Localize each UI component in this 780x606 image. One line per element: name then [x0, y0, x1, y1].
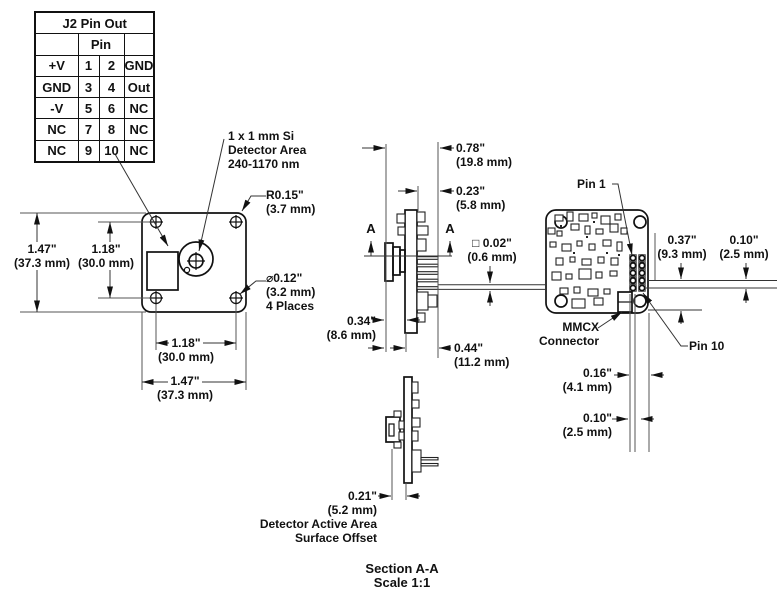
dim-surface-offset: 0.21" (5.2 mm) Detector Active Area Surf…	[260, 489, 377, 545]
smd-components	[548, 212, 627, 308]
dim-pin-col-offset: 0.16" (4.1 mm)	[563, 366, 612, 394]
pin-header	[630, 255, 646, 292]
mmcx-connector-label: MMCX Connector	[539, 320, 599, 348]
dim-front-height: 1.47" (37.3 mm)	[12, 242, 72, 270]
section-marker-a-right: A	[445, 222, 454, 236]
section-view	[378, 377, 438, 500]
dim-can-depth: 0.34" (8.6 mm)	[327, 314, 376, 342]
detector-area-note: 1 x 1 mm Si Detector Area 240-1170 nm	[228, 129, 306, 171]
mmcx-leader-line	[598, 312, 622, 328]
dim-pin-col-pitch: 0.10" (2.5 mm)	[563, 411, 612, 439]
dim-pin-square: □ 0.02" (0.6 mm)	[467, 236, 516, 264]
pin1-label: Pin 1	[577, 177, 606, 191]
table-row: NC7 8NC	[35, 119, 154, 140]
pcb-edge	[405, 210, 417, 333]
pin10-label: Pin 10	[689, 339, 724, 353]
dim-pin-protrusion: 0.23" (5.8 mm)	[456, 184, 505, 212]
pinout-table: J2 Pin Out Pin +V1 2GND GND3 4Out -V5 6N…	[34, 11, 155, 163]
section-caption: Section A-A Scale 1:1	[365, 562, 438, 590]
engineering-drawing-page: J2 Pin Out Pin +V1 2GND GND3 4Out -V5 6N…	[0, 0, 780, 606]
dim-board-to-pin: 0.44" (11.2 mm)	[454, 341, 509, 369]
dim-corner-radius: R0.15" (3.7 mm)	[266, 188, 315, 216]
dim-hole-spacing-vertical: 1.18" (30.0 mm)	[76, 242, 136, 270]
detector-can-side	[385, 243, 405, 281]
table-row: NC9 10NC	[35, 140, 154, 162]
pin-header-cell: Pin	[78, 34, 124, 55]
detector-leader-line	[199, 139, 224, 251]
dim-hole-spacing-horizontal: 1.18" (30.0 mm)	[156, 336, 216, 364]
pinout-table-title: J2 Pin Out	[35, 12, 154, 34]
radius-leader-line	[242, 196, 266, 211]
dim-hole-diameter: ⌀0.12" (3.2 mm) 4 Places	[266, 271, 315, 313]
table-row: +V1 2GND	[35, 55, 154, 76]
side-view	[362, 142, 545, 358]
hole-dia-leader-line	[240, 281, 266, 294]
detector-can-section	[386, 411, 404, 448]
dim-pin-row-pitch: 0.10" (2.5 mm)	[719, 233, 768, 261]
dim-front-width: 1.47" (37.3 mm)	[155, 374, 215, 402]
detector-aperture	[179, 242, 213, 276]
header-pins-side	[417, 257, 438, 290]
section-marker-a-left: A	[366, 222, 375, 236]
j2-connector-footprint	[147, 252, 178, 290]
pcb-section	[404, 377, 412, 483]
dim-pin-row-offset: 0.37" (9.3 mm)	[657, 233, 706, 261]
table-row: GND3 4Out	[35, 76, 154, 97]
dim-overall-depth: 0.78" (19.8 mm)	[456, 141, 512, 169]
table-row: -V5 6NC	[35, 98, 154, 119]
